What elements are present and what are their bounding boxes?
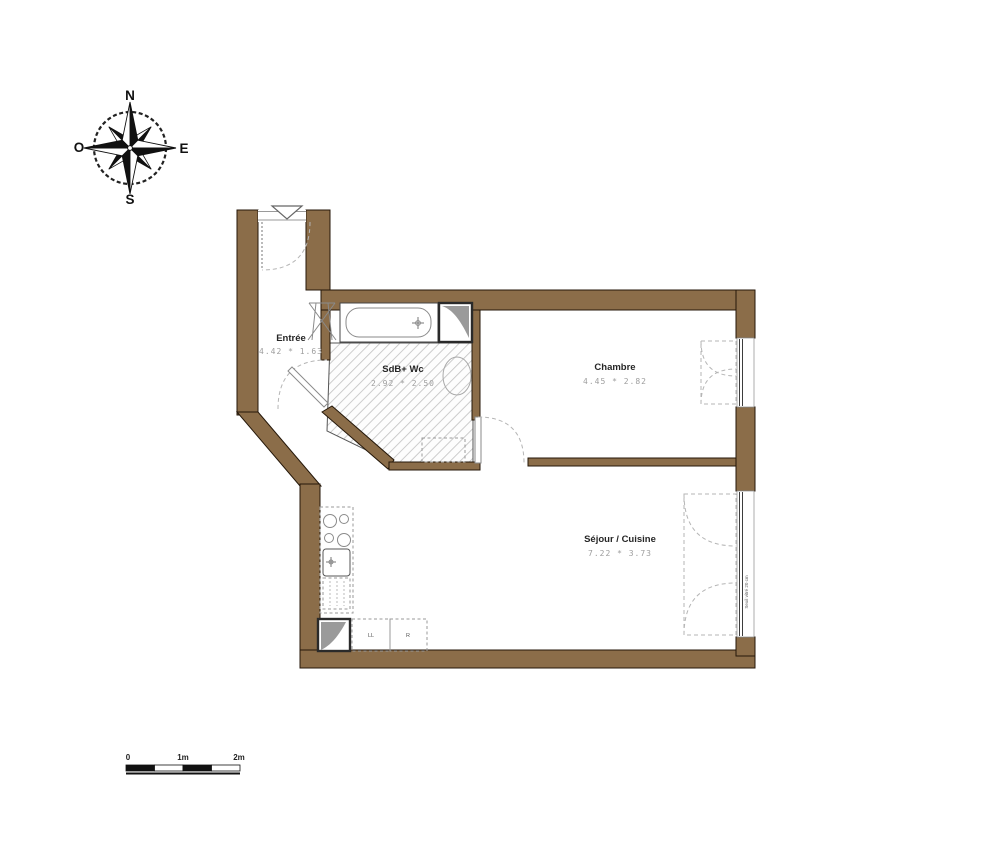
fridge-box: R [390, 619, 427, 651]
cooktop-icon [324, 515, 351, 547]
bathroom-tiled-floor [327, 343, 473, 462]
room-dims-sdb: 2.92 * 2.50 [371, 379, 435, 388]
bathroom-door [278, 360, 328, 409]
bathtub-icon [340, 303, 438, 342]
room-dims-chambre: 4.45 * 2.82 [583, 377, 647, 386]
dishwasher-icon [323, 578, 350, 609]
compass-rose-icon: N E S O [74, 88, 189, 207]
wall-west-upper [237, 210, 258, 415]
wall-bathroom-south [389, 462, 480, 470]
room-label-chambre: Chambre [594, 362, 635, 373]
floorplan-canvas: N E S O [0, 0, 1000, 857]
entrance-door-swing [262, 222, 310, 270]
walls [237, 210, 755, 668]
wall-west-diagonal [237, 412, 321, 486]
room-dims-entree: 4.42 * 1.63 [259, 347, 323, 356]
compass-label-north: N [125, 88, 135, 103]
kitchen-sink-icon [323, 549, 350, 576]
wall-east-middle [736, 407, 755, 491]
scale-bar: 0 1m 2m [126, 753, 245, 774]
entrance-door [258, 206, 310, 270]
floorplan-drawing: N E S O [0, 0, 1000, 857]
fridge-label: R [406, 633, 410, 639]
room-dims-sejour: 7.22 * 3.73 [588, 549, 652, 558]
duct-top-icon [439, 303, 472, 342]
bedroom-door [475, 417, 524, 463]
scale-label-0: 0 [126, 753, 131, 762]
livingroom-window: Seuil vitré 20 cm [684, 491, 754, 637]
room-label-sejour: Séjour / Cuisine [584, 534, 656, 545]
duct-bottom-icon [318, 619, 350, 651]
room-label-entree: Entrée [276, 333, 306, 344]
washing-machine-label: LL [368, 633, 374, 639]
window-threshold-note: Seuil vitré 20 cm [744, 575, 749, 609]
room-label-sdb: SdB+ Wc [382, 364, 423, 375]
wall-bedroom-separation [528, 458, 736, 466]
bedroom-window [701, 338, 754, 407]
compass-label-south: S [125, 192, 134, 207]
wall-bathroom-east [472, 310, 480, 420]
compass-label-east: E [179, 141, 188, 156]
scale-label-1m: 1m [177, 753, 189, 762]
wall-east-upper [736, 290, 755, 338]
scale-label-2m: 2m [233, 753, 245, 762]
compass-label-west: O [74, 140, 85, 155]
kitchen-counter [320, 507, 353, 613]
wall-south [300, 650, 755, 668]
washing-machine-box: LL [352, 619, 390, 651]
wall-east-lower [736, 637, 755, 656]
